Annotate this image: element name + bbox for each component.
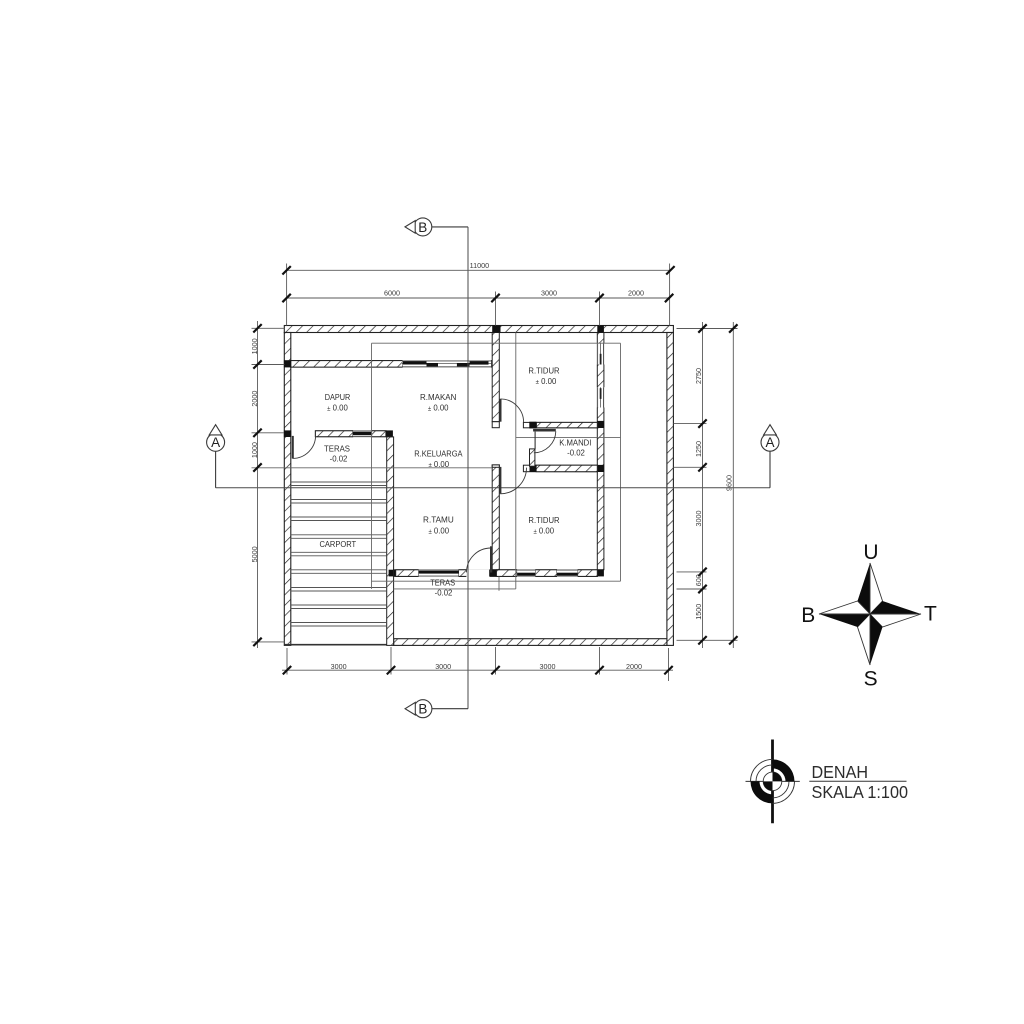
svg-text:T: T [924, 603, 937, 626]
svg-text:A: A [765, 435, 774, 450]
svg-text:R.MAKAN: R.MAKAN [420, 392, 456, 402]
svg-text:CARPORT: CARPORT [319, 539, 356, 549]
svg-text:A: A [211, 435, 220, 450]
svg-text:3000: 3000 [694, 511, 703, 527]
svg-text:1000: 1000 [250, 338, 259, 354]
svg-text:6000: 6000 [384, 288, 400, 297]
svg-text:R.TIDUR: R.TIDUR [528, 515, 559, 525]
svg-text:2000: 2000 [626, 662, 642, 671]
svg-text:5000: 5000 [250, 546, 259, 562]
svg-text:U: U [863, 541, 878, 564]
svg-text:2750: 2750 [694, 368, 703, 384]
svg-text:± 0.00: ± 0.00 [428, 403, 449, 412]
svg-text:600: 600 [694, 574, 703, 586]
svg-text:R.TIDUR: R.TIDUR [528, 366, 559, 376]
svg-text:1500: 1500 [694, 604, 703, 620]
svg-text:± 0.00: ± 0.00 [533, 527, 554, 536]
svg-text:1250: 1250 [694, 441, 703, 457]
svg-text:DAPUR: DAPUR [325, 392, 351, 402]
svg-text:3000: 3000 [541, 288, 557, 297]
svg-text:TERAS: TERAS [324, 443, 350, 453]
svg-text:± 0.00: ± 0.00 [536, 377, 557, 386]
svg-text:R.KELUARGA: R.KELUARGA [414, 448, 463, 458]
svg-text:2000: 2000 [628, 288, 644, 297]
svg-text:3000: 3000 [540, 662, 556, 671]
svg-text:S: S [864, 667, 878, 690]
svg-text:SKALA 1:100: SKALA 1:100 [812, 782, 909, 802]
svg-text:2000: 2000 [250, 391, 259, 407]
svg-text:± 0.00: ± 0.00 [428, 527, 449, 536]
svg-text:9600: 9600 [725, 475, 734, 491]
svg-text:± 0.00: ± 0.00 [428, 460, 449, 469]
svg-text:B: B [801, 604, 815, 627]
svg-text:3000: 3000 [331, 662, 347, 671]
svg-text:-0.02: -0.02 [330, 454, 348, 463]
svg-text:B: B [418, 702, 427, 717]
svg-text:DENAH: DENAH [812, 762, 869, 782]
svg-text:11000: 11000 [470, 261, 489, 270]
svg-text:± 0.00: ± 0.00 [327, 403, 348, 412]
svg-text:R.TAMU: R.TAMU [423, 515, 454, 525]
svg-text:-0.02: -0.02 [435, 589, 453, 598]
svg-text:3000: 3000 [435, 662, 451, 671]
svg-text:B: B [418, 220, 427, 235]
svg-text:1000: 1000 [250, 442, 259, 458]
svg-text:-0.02: -0.02 [567, 449, 585, 458]
svg-text:TERAS: TERAS [430, 577, 455, 587]
svg-text:K.MANDI: K.MANDI [559, 437, 591, 447]
